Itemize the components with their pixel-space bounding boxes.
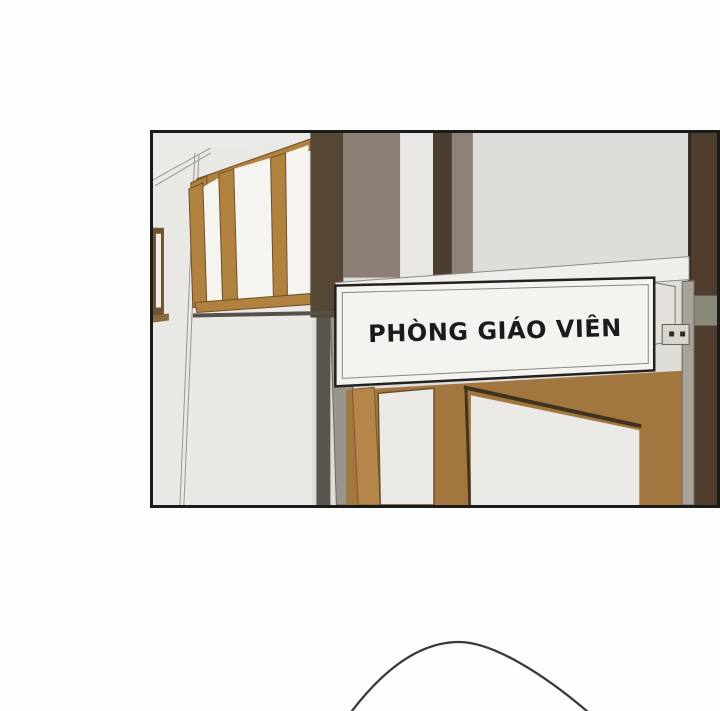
taupe-band-2 [452,133,473,281]
window-mullion-1 [271,153,288,306]
head-outline-path [346,642,596,711]
comic-panel: PHÒNG GIÁO VIÊN [150,130,720,508]
taupe-band [343,133,400,278]
door-panel-left [378,388,434,505]
shadow-strip [316,318,330,505]
bracket-screw-1 [669,331,674,336]
metal-pole-right [682,281,694,505]
window-pane-middle [234,158,274,307]
head-outline-sketch [0,505,720,711]
dark-stripe [433,133,452,281]
white-sliver [400,133,433,280]
bracket-screw-2 [680,331,685,336]
door-sign-label: PHÒNG GIÁO VIÊN [335,279,655,383]
partial-window-pane [156,234,161,308]
window-pane-right [286,145,309,305]
comic-page: PHÒNG GIÁO VIÊN [0,0,720,711]
